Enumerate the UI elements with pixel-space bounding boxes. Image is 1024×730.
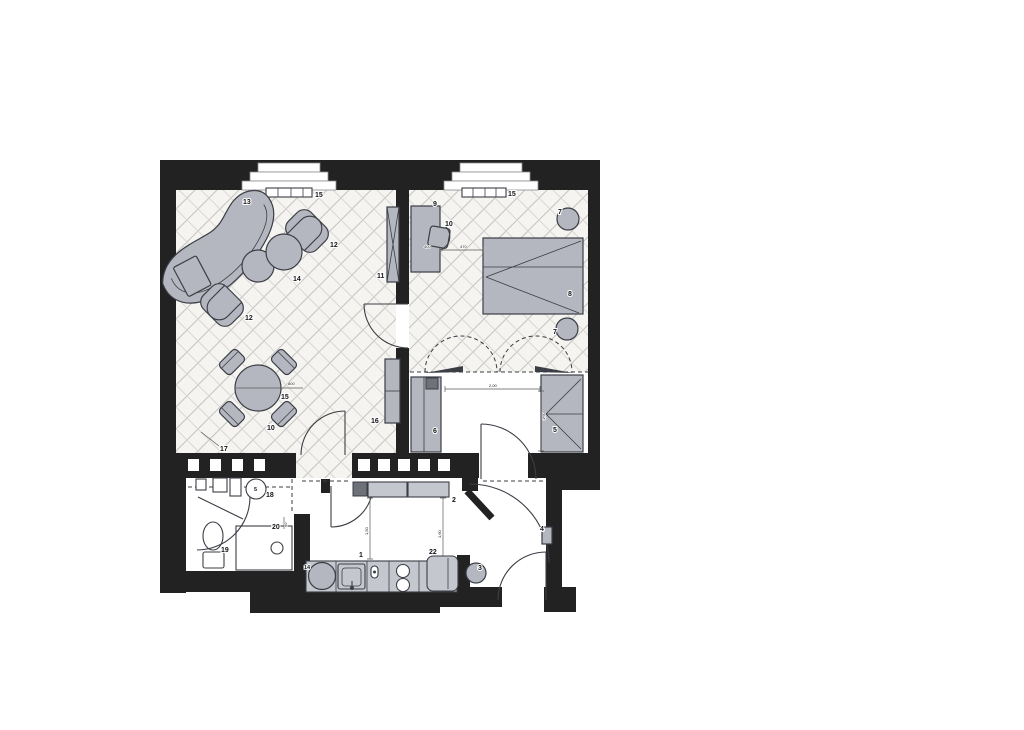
wall-band-mid <box>352 453 479 478</box>
label-bed: 8 <box>568 291 572 298</box>
round-sink <box>309 563 336 590</box>
label-armchair-left: 12 <box>245 315 253 322</box>
window-sill <box>460 163 522 172</box>
burner <box>397 565 410 578</box>
dim-shower: 90 <box>283 522 288 527</box>
side-table-bottom <box>556 318 578 340</box>
band-gap <box>438 459 450 471</box>
stool <box>466 563 486 583</box>
door-arc <box>481 424 536 479</box>
label-radiator-bedroom: 15 <box>508 191 516 198</box>
dim-table: 800 <box>288 381 295 386</box>
dim-dressing-w: 2,00 <box>489 383 498 388</box>
label-floor: 17 <box>220 446 228 453</box>
label-wall-cabinet: 11 <box>377 273 385 280</box>
label-toilet: 19 <box>221 547 229 554</box>
label-wall-unit: 4 <box>540 526 544 533</box>
wardrobe-left <box>411 377 441 452</box>
front-door <box>498 552 546 600</box>
counter-fitting-dot <box>373 571 376 574</box>
label-sofa: 13 <box>243 199 251 206</box>
dim-kitchen-b: 1,60 <box>437 529 442 538</box>
window-sill <box>452 172 530 181</box>
band-gap <box>418 459 430 471</box>
band-gap <box>378 459 390 471</box>
door-leaf <box>198 497 243 519</box>
entry-hall <box>466 424 552 600</box>
band-gap <box>188 459 199 471</box>
label-kitchen: 1 <box>359 552 363 559</box>
wall-chamfer <box>467 491 492 518</box>
tall-cabinet <box>387 207 399 282</box>
label-fridge: 22 <box>429 549 437 556</box>
kitchen <box>302 481 458 592</box>
dressing-door <box>481 424 536 479</box>
label-shower: 20 <box>272 524 280 531</box>
wall-right-upper <box>588 160 600 472</box>
bath-shelf <box>196 479 206 490</box>
wardrobe-corner <box>541 375 583 452</box>
label-table: 15 <box>281 394 289 401</box>
bath-cabinet <box>213 478 227 492</box>
burner <box>397 579 410 592</box>
label-dining-chairs: 10 <box>267 425 275 432</box>
bath-shelf <box>230 478 241 496</box>
dim-kitchen-a: 1,50 <box>364 526 369 535</box>
label-side-table-top: 7 <box>558 209 562 216</box>
label-kitchen-sink: 14 <box>304 565 311 571</box>
dim-desk-a: 400 <box>424 244 431 249</box>
label-desk-chair: 10 <box>445 221 453 228</box>
door-arc <box>498 552 546 600</box>
dim-desk-b: 470 <box>460 244 467 249</box>
label-boiler: 18 <box>266 492 274 499</box>
label-wardrobe-left: 6 <box>433 428 437 435</box>
corridor-floor <box>296 453 352 478</box>
label-stool: 3 <box>478 565 482 572</box>
bed <box>483 238 583 314</box>
radiator <box>266 188 312 197</box>
hall-door-arc <box>470 484 549 563</box>
label-armchair-right: 12 <box>330 242 338 249</box>
label-poufs: 14 <box>293 276 301 283</box>
kitchen-dim-line-b <box>440 498 446 559</box>
band-gap <box>398 459 410 471</box>
fridge <box>427 556 458 591</box>
band-gap <box>210 459 221 471</box>
wall-cabinets <box>353 482 449 497</box>
low-cabinet <box>385 359 400 423</box>
band-gap <box>358 459 370 471</box>
radiator <box>462 188 506 197</box>
dim-dressing-d: 1,60 <box>541 411 546 420</box>
label-side-table-bottom: 7 <box>553 329 557 336</box>
wall-left-upper <box>160 160 176 478</box>
scanned-page: 13 12 14 12 15 15 10 11 16 17 9 10 15 7 … <box>0 0 1024 730</box>
label-boiler-symbol: 5 <box>254 487 257 493</box>
label-hall-cabinets: 2 <box>452 497 456 504</box>
label-wardrobe-corner: 5 <box>553 427 557 434</box>
label-radiator-living: 15 <box>315 192 323 199</box>
shower-tray <box>236 526 292 570</box>
wall-bottom-left <box>160 571 310 592</box>
band-gap <box>254 459 265 471</box>
floor-plan-svg: 13 12 14 12 15 15 10 11 16 17 9 10 15 7 … <box>0 0 1024 730</box>
window-sill <box>258 163 320 172</box>
label-cabinet-low: 16 <box>371 418 379 425</box>
wall-bottom-mid <box>250 592 440 613</box>
band-gap <box>232 459 243 471</box>
window-sill <box>250 172 328 181</box>
faucet-base <box>350 586 354 590</box>
wall-bottom-corner <box>544 587 576 612</box>
label-desk: 9 <box>433 201 437 208</box>
